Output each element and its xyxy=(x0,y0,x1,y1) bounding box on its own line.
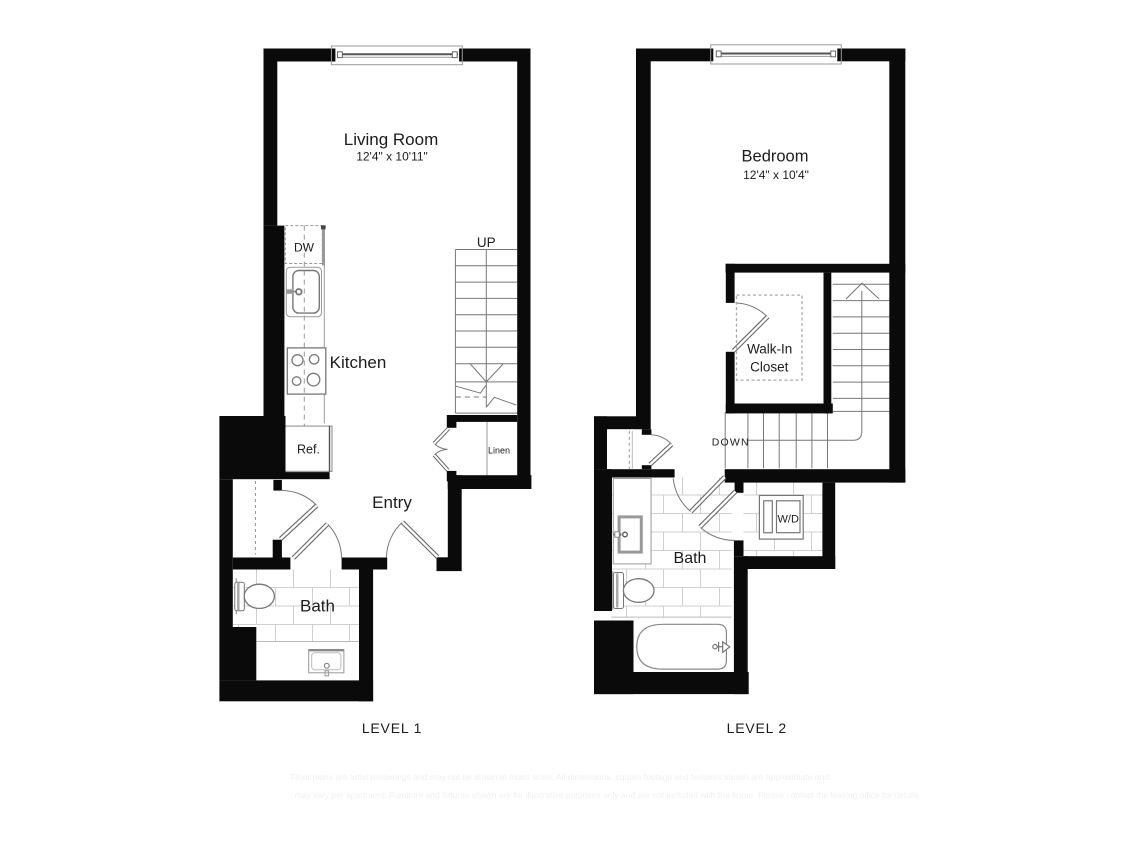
svg-text:12'4" x 10'4": 12'4" x 10'4" xyxy=(743,168,809,182)
svg-text:Living Room: Living Room xyxy=(344,130,439,149)
svg-text:Bedroom: Bedroom xyxy=(742,148,809,166)
svg-text:Bath: Bath xyxy=(674,550,707,567)
svg-text:Entry: Entry xyxy=(372,493,412,512)
svg-text:Closet: Closet xyxy=(750,360,789,375)
svg-text:12'4" x 10'11": 12'4" x 10'11" xyxy=(356,150,428,164)
svg-text:Bath: Bath xyxy=(300,597,335,616)
svg-text:Floor plans are artist renderi: Floor plans are artist renderings and ma… xyxy=(291,772,829,782)
svg-text:Walk-In: Walk-In xyxy=(747,342,792,357)
svg-text:Kitchen: Kitchen xyxy=(330,353,387,372)
svg-text:LEVEL 2: LEVEL 2 xyxy=(727,720,787,736)
svg-text:DOWN: DOWN xyxy=(712,437,750,449)
svg-text:W/D: W/D xyxy=(778,514,799,526)
svg-text:Ref.: Ref. xyxy=(297,443,320,457)
svg-text:UP: UP xyxy=(477,235,496,250)
svg-text:LEVEL 1: LEVEL 1 xyxy=(362,720,422,736)
svg-text:Linen: Linen xyxy=(488,446,510,456)
svg-text:DW: DW xyxy=(294,241,315,255)
svg-text:may vary per apartment. Furnit: may vary per apartment. Furniture and fi… xyxy=(295,790,922,800)
